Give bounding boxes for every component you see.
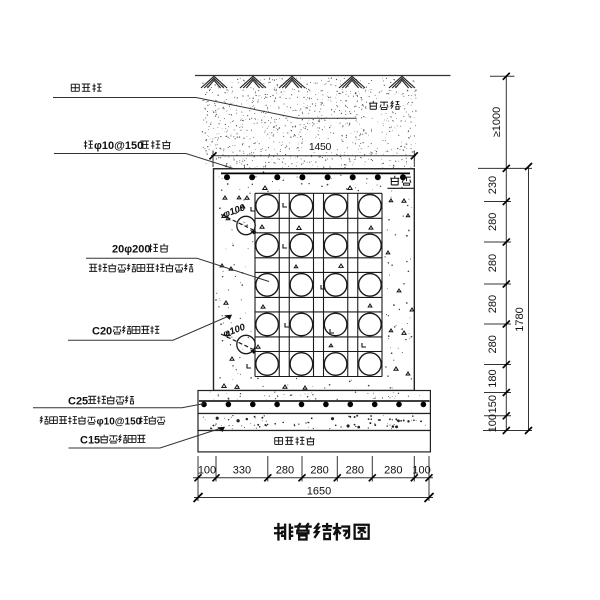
- svg-text:280: 280: [487, 335, 499, 353]
- svg-text:1650: 1650: [307, 486, 331, 498]
- svg-text:230: 230: [487, 176, 499, 194]
- svg-text:φ10@150: φ10@150: [94, 140, 143, 152]
- svg-text:20φ200: 20φ200: [112, 244, 150, 256]
- svg-text:280: 280: [487, 254, 499, 272]
- svg-text:330: 330: [233, 465, 251, 477]
- svg-text:280: 280: [384, 465, 402, 477]
- svg-text:280: 280: [346, 465, 364, 477]
- svg-text:≥1000: ≥1000: [491, 107, 503, 138]
- svg-text:280: 280: [310, 465, 328, 477]
- svg-text:1780: 1780: [514, 307, 526, 331]
- svg-text:1450: 1450: [309, 141, 332, 153]
- svg-text:180: 180: [487, 369, 499, 387]
- svg-text:100: 100: [412, 465, 430, 477]
- svg-text:280: 280: [276, 465, 294, 477]
- svg-text:100: 100: [487, 414, 499, 432]
- svg-text:C15: C15: [80, 435, 100, 447]
- svg-text:280: 280: [487, 213, 499, 231]
- svg-text:280: 280: [487, 295, 499, 313]
- svg-text:φ10@150: φ10@150: [97, 416, 142, 427]
- svg-text:150: 150: [487, 395, 499, 413]
- svg-text:C25: C25: [68, 396, 88, 408]
- svg-text:C20: C20: [92, 326, 112, 338]
- svg-text:100: 100: [198, 465, 216, 477]
